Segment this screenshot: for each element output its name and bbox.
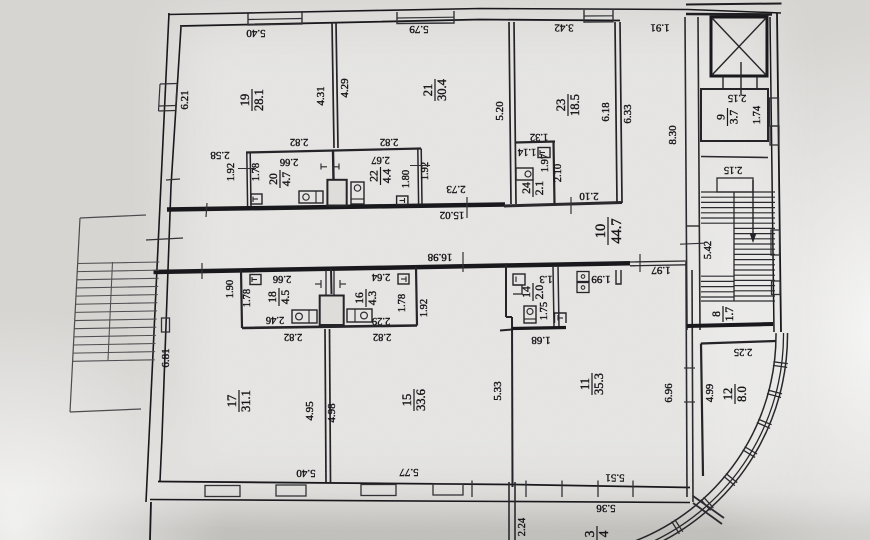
svg-text:12: 12 — [721, 388, 735, 401]
svg-text:15: 15 — [400, 394, 414, 407]
svg-text:4.5: 4.5 — [280, 290, 292, 305]
svg-text:4: 4 — [596, 530, 611, 537]
svg-text:8.0: 8.0 — [735, 386, 749, 402]
svg-text:18.5: 18.5 — [568, 94, 582, 116]
svg-text:1.99: 1.99 — [591, 273, 611, 285]
svg-text:4.7: 4.7 — [281, 172, 293, 187]
svg-text:2.15: 2.15 — [728, 92, 746, 103]
svg-text:1.32: 1.32 — [530, 131, 548, 142]
svg-text:44.7: 44.7 — [609, 218, 625, 243]
svg-text:4.29: 4.29 — [339, 78, 351, 98]
svg-text:2.25: 2.25 — [734, 346, 752, 357]
svg-text:4.31: 4.31 — [315, 86, 327, 105]
svg-text:2.64: 2.64 — [371, 271, 390, 282]
svg-text:1.92: 1.92 — [226, 163, 237, 181]
svg-text:1.90: 1.90 — [225, 280, 236, 298]
svg-text:1.7: 1.7 — [724, 307, 736, 322]
svg-text:2.67: 2.67 — [371, 154, 389, 165]
svg-text:21: 21 — [421, 84, 435, 97]
svg-text:4.98: 4.98 — [326, 403, 338, 423]
svg-text:5.79: 5.79 — [409, 23, 429, 35]
svg-text:8: 8 — [711, 311, 723, 317]
svg-text:1.78: 1.78 — [397, 294, 408, 312]
svg-text:1.92: 1.92 — [420, 162, 431, 180]
svg-text:1.97: 1.97 — [651, 264, 671, 276]
svg-text:5.42: 5.42 — [703, 241, 714, 259]
svg-text:2.0: 2.0 — [534, 285, 546, 300]
svg-text:5.40: 5.40 — [296, 467, 316, 479]
svg-text:1.91: 1.91 — [650, 22, 669, 34]
svg-text:5.36: 5.36 — [596, 502, 616, 514]
svg-text:6.81: 6.81 — [160, 348, 172, 367]
svg-text:22: 22 — [369, 170, 381, 182]
svg-text:1.92: 1.92 — [419, 299, 430, 317]
svg-text:4.4: 4.4 — [382, 169, 394, 184]
svg-text:2.10: 2.10 — [579, 190, 599, 202]
svg-text:16: 16 — [354, 292, 366, 304]
svg-text:3.42: 3.42 — [554, 22, 573, 34]
svg-text:5.77: 5.77 — [399, 466, 419, 478]
svg-text:2.82: 2.82 — [290, 136, 308, 147]
svg-text:2.24: 2.24 — [517, 517, 528, 536]
svg-text:2.46: 2.46 — [266, 314, 284, 325]
svg-text:20: 20 — [268, 173, 280, 185]
svg-text:6.96: 6.96 — [663, 383, 675, 403]
svg-text:4.99: 4.99 — [705, 384, 716, 402]
svg-text:1.3: 1.3 — [539, 273, 552, 284]
svg-text:6.33: 6.33 — [622, 104, 634, 124]
svg-text:31.1: 31.1 — [239, 390, 253, 412]
svg-text:16.98: 16.98 — [427, 251, 452, 263]
svg-text:33.6: 33.6 — [414, 389, 428, 411]
svg-text:5.40: 5.40 — [246, 27, 266, 39]
svg-text:4.3: 4.3 — [367, 291, 379, 306]
svg-text:18: 18 — [267, 291, 279, 303]
svg-text:14: 14 — [521, 286, 533, 298]
svg-text:9: 9 — [716, 114, 728, 120]
svg-text:8.30: 8.30 — [667, 125, 679, 145]
svg-text:2.73: 2.73 — [446, 183, 466, 195]
svg-text:2.66: 2.66 — [280, 156, 298, 167]
svg-text:15.02: 15.02 — [440, 209, 465, 221]
svg-text:10: 10 — [593, 224, 609, 239]
svg-text:3.7: 3.7 — [729, 110, 741, 125]
svg-text:2.29: 2.29 — [372, 315, 390, 326]
svg-text:2.66: 2.66 — [273, 273, 291, 284]
svg-text:1.14: 1.14 — [517, 146, 536, 157]
svg-text:5.33: 5.33 — [492, 381, 504, 401]
svg-text:1.74: 1.74 — [752, 105, 763, 124]
svg-text:23: 23 — [554, 99, 568, 112]
svg-text:6.18: 6.18 — [600, 102, 612, 122]
svg-text:5.20: 5.20 — [494, 101, 506, 121]
svg-text:2.15: 2.15 — [724, 164, 742, 175]
svg-text:1.78: 1.78 — [242, 289, 253, 307]
svg-text:11: 11 — [578, 378, 592, 390]
svg-text:2.82: 2.82 — [373, 331, 391, 342]
svg-text:3: 3 — [582, 530, 597, 537]
svg-text:17: 17 — [225, 395, 239, 408]
svg-text:4.95: 4.95 — [304, 401, 316, 421]
svg-text:2.58: 2.58 — [210, 149, 230, 161]
svg-text:6.21: 6.21 — [179, 90, 191, 109]
svg-text:35.3: 35.3 — [592, 373, 606, 395]
svg-text:2.1: 2.1 — [534, 181, 546, 196]
svg-text:24: 24 — [521, 182, 533, 194]
svg-text:2.10: 2.10 — [553, 164, 564, 182]
svg-text:1.78: 1.78 — [251, 163, 262, 181]
svg-text:28.1: 28.1 — [252, 89, 266, 111]
svg-text:2.82: 2.82 — [284, 331, 302, 342]
svg-text:1.68: 1.68 — [531, 334, 551, 346]
svg-text:5.51: 5.51 — [605, 472, 624, 484]
svg-text:1.75: 1.75 — [539, 302, 550, 320]
svg-text:1.80: 1.80 — [401, 170, 412, 188]
svg-text:19: 19 — [238, 94, 252, 107]
svg-text:30.4: 30.4 — [435, 78, 449, 101]
svg-text:2.82: 2.82 — [380, 136, 398, 147]
